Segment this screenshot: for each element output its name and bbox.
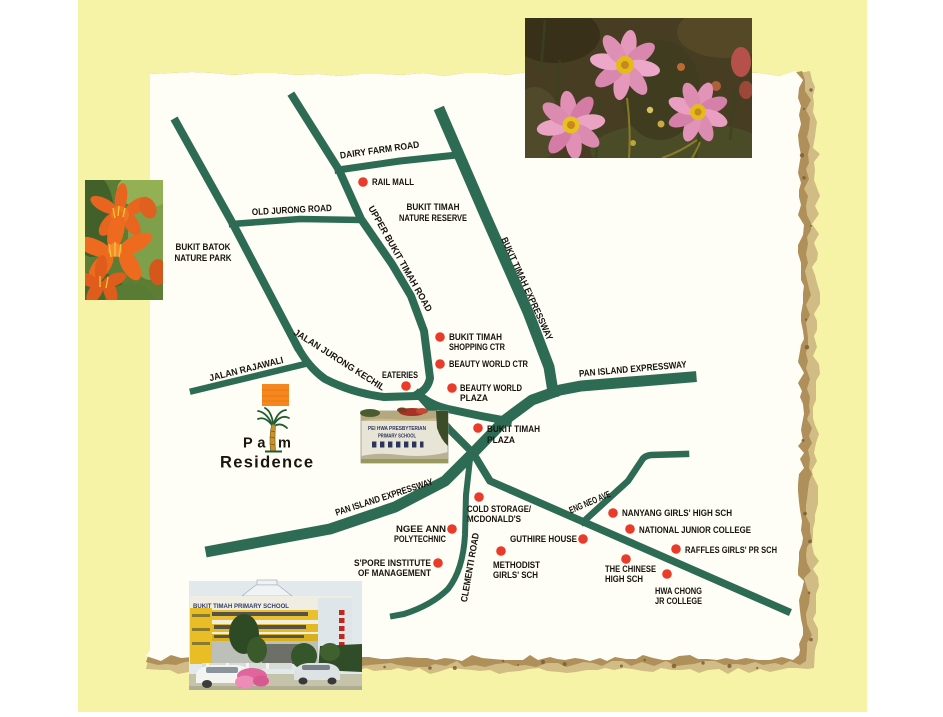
svg-text:SHOPPING CTR: SHOPPING CTR <box>449 341 505 352</box>
svg-text:PRIMARY SCHOOL: PRIMARY SCHOOL <box>378 434 417 440</box>
svg-text:MCDONALD'S: MCDONALD'S <box>467 513 521 524</box>
svg-text:BUKIT TIMAH: BUKIT TIMAH <box>407 202 460 213</box>
svg-text:HIGH SCH: HIGH SCH <box>605 573 643 584</box>
svg-text:NATURE RESERVE: NATURE RESERVE <box>399 213 467 224</box>
svg-text:PEI HWA PRESBYTERIAN: PEI HWA PRESBYTERIAN <box>368 426 426 432</box>
svg-text:PLAZA: PLAZA <box>487 434 515 445</box>
svg-text:RAIL MALL: RAIL MALL <box>372 176 414 187</box>
svg-text:NATIONAL JUNIOR COLLEGE: NATIONAL JUNIOR COLLEGE <box>639 524 751 535</box>
svg-text:RAFFLES GIRLS' PR SCH: RAFFLES GIRLS' PR SCH <box>685 544 777 555</box>
svg-text:BEAUTY WORLD CTR: BEAUTY WORLD CTR <box>449 358 528 369</box>
svg-text:JR COLLEGE: JR COLLEGE <box>655 595 702 606</box>
svg-text:POLYTECHNIC: POLYTECHNIC <box>394 533 446 544</box>
svg-text:m: m <box>278 436 291 452</box>
svg-text:OF MANAGEMENT: OF MANAGEMENT <box>358 567 431 578</box>
svg-text:BUKIT BATOK: BUKIT BATOK <box>176 242 231 253</box>
svg-text:GUTHIRE HOUSE: GUTHIRE HOUSE <box>510 533 577 544</box>
svg-text:GIRLS' SCH: GIRLS' SCH <box>493 569 538 580</box>
svg-text:Residence: Residence <box>220 454 313 472</box>
svg-text:NATURE PARK: NATURE PARK <box>175 253 232 264</box>
svg-text:NANYANG GIRLS' HIGH SCH: NANYANG GIRLS' HIGH SCH <box>622 507 732 518</box>
svg-text:PLAZA: PLAZA <box>460 392 488 403</box>
svg-text:BUKIT TIMAH: BUKIT TIMAH <box>487 423 540 434</box>
svg-text:EATERIES: EATERIES <box>382 369 418 380</box>
